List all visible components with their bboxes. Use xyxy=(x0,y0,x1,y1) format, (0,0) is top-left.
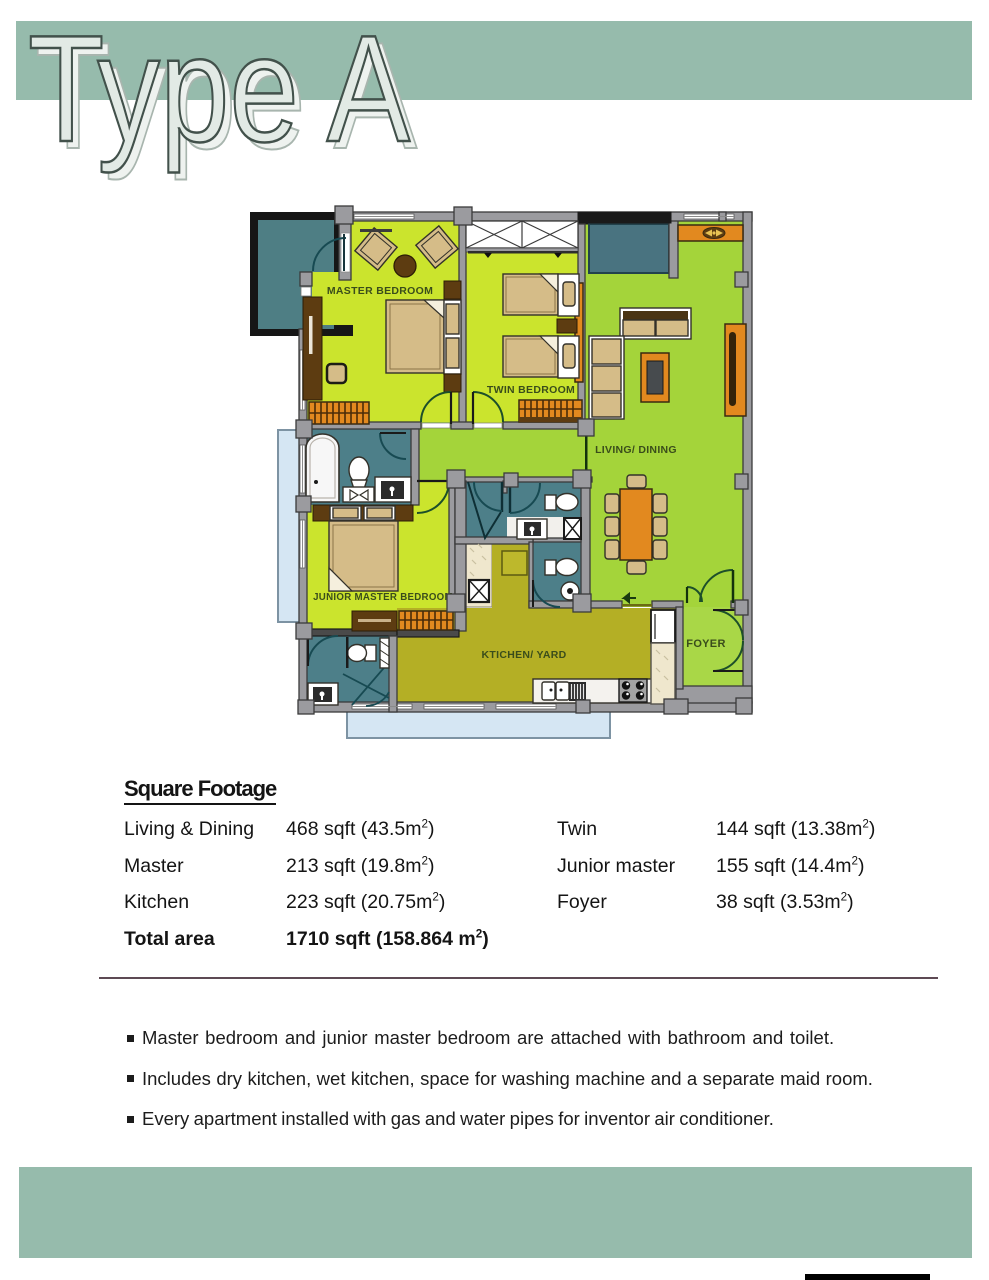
svg-text:LIVING/ DINING: LIVING/ DINING xyxy=(595,444,677,456)
svg-text:TWIN BEDROOM: TWIN BEDROOM xyxy=(487,384,575,396)
svg-text:KTICHEN/ YARD: KTICHEN/ YARD xyxy=(482,649,567,661)
svg-text:JUNIOR MASTER BEDROOM: JUNIOR MASTER BEDROOM xyxy=(313,592,453,603)
svg-text:MASTER BEDROOM: MASTER BEDROOM xyxy=(327,285,433,297)
svg-text:FOYER: FOYER xyxy=(686,638,725,650)
